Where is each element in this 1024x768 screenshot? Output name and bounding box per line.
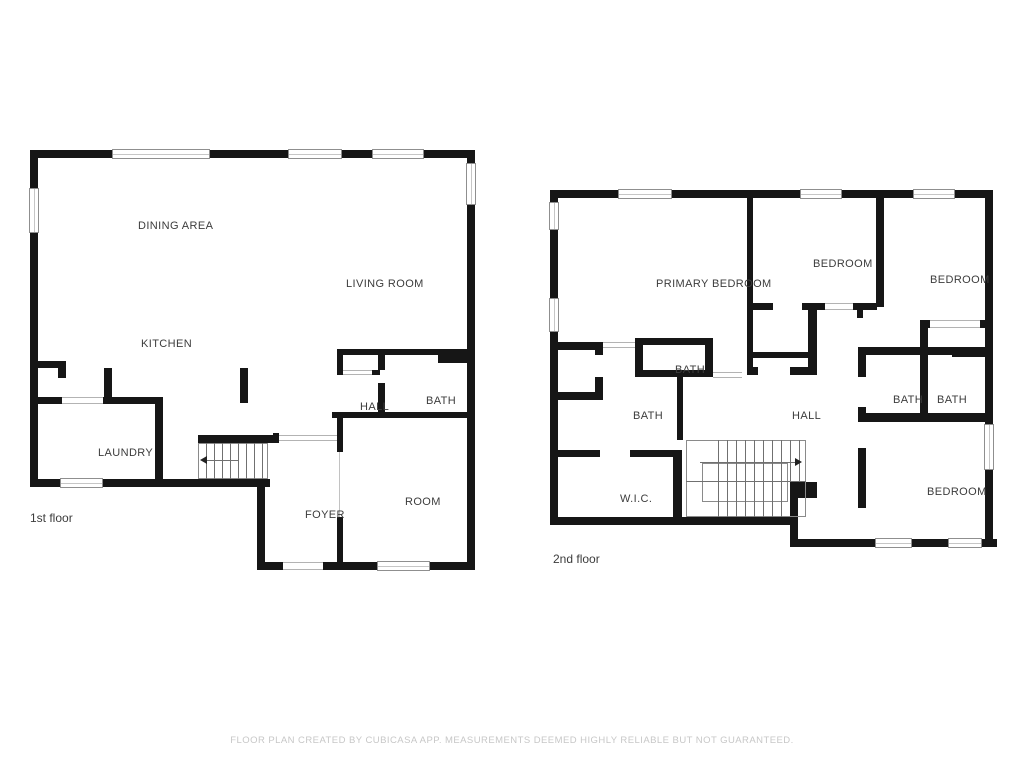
window [466,163,476,205]
stair-tread-line [754,481,755,517]
stair-tread-line [772,481,773,517]
stair-tread-line [727,481,728,517]
wall-segment [876,192,884,307]
window [618,189,672,199]
wall-segment [677,377,683,440]
stair-tread-line [222,443,223,479]
window [800,189,842,199]
wall-segment [747,352,815,358]
stair-tread-line [745,481,746,517]
window [288,149,342,159]
wall-segment [753,303,773,310]
wall-segment [378,349,385,370]
stair-direction-arrow [200,456,207,464]
stair-tread-line [781,440,782,481]
wall-segment [550,450,600,457]
stair-tread-line [745,440,746,481]
wall-segment [853,303,877,310]
stair-arrow-line [700,462,796,463]
stair-tread-line [246,443,247,479]
stair-tread-line [754,440,755,481]
wall-segment [595,342,603,355]
wall-segment [673,450,682,525]
stair-tread-line [763,440,764,481]
stair-tread-line [718,440,719,481]
wall-segment [635,338,713,345]
door-opening [825,303,853,310]
wall-segment [558,392,603,400]
wall-segment [372,370,380,375]
wall-segment [550,190,558,525]
wall-segment [257,479,265,570]
door-swing-line [339,452,340,517]
window [372,149,424,159]
wall-segment [595,377,603,393]
stair-tread-line [772,440,773,481]
disclaimer-text: FLOOR PLAN CREATED BY CUBICASA APP. MEAS… [0,735,1024,746]
stair-tread-line [781,481,782,517]
stair-tread-line [214,443,215,479]
door-opening [62,397,103,404]
wall-segment [952,347,993,357]
wall-segment [858,413,993,422]
window [29,188,39,233]
stair-tread-line [790,440,791,481]
wall-segment [332,412,473,418]
stair-tread-line [763,481,764,517]
door-opening [713,372,742,378]
wall-segment [858,347,866,377]
window [549,202,559,230]
wall-segment [438,353,475,363]
stair-direction-arrow [795,458,802,466]
wall-segment [337,412,343,452]
window [913,189,955,199]
stair-tread-line [736,481,737,517]
wall-segment [240,368,248,403]
wall-segment [808,303,817,375]
wall-segment [858,448,866,508]
window [549,298,559,332]
door-opening [603,342,635,348]
window [377,561,430,571]
wall-segment [257,562,285,570]
door-opening [930,320,980,328]
wall-segment [155,397,163,487]
window [112,149,210,159]
door-opening [343,370,372,375]
stair-tread-line [736,440,737,481]
wall-segment [857,310,863,318]
wall-segment [198,435,275,443]
door-opening [283,562,323,570]
stair-tread-line [727,440,728,481]
window [60,478,103,488]
stair-tread-line [686,481,806,482]
wall-segment [58,361,66,378]
stair-tread-line [262,443,263,479]
window [875,538,912,548]
stair-tread-line [254,443,255,479]
floor-plan-canvas: FLOOR PLAN CREATED BY CUBICASA APP. MEAS… [0,0,1024,768]
stair-tread-line [230,443,231,479]
wall-segment [337,517,343,562]
window [984,424,994,470]
wall-segment [104,368,112,404]
stair-arrow-line [206,460,238,461]
staircase-outline [198,443,268,479]
stair-tread-line [238,443,239,479]
door-opening [279,435,337,441]
wall-segment [747,367,758,375]
stair-tread-line [718,481,719,517]
window [948,538,982,548]
